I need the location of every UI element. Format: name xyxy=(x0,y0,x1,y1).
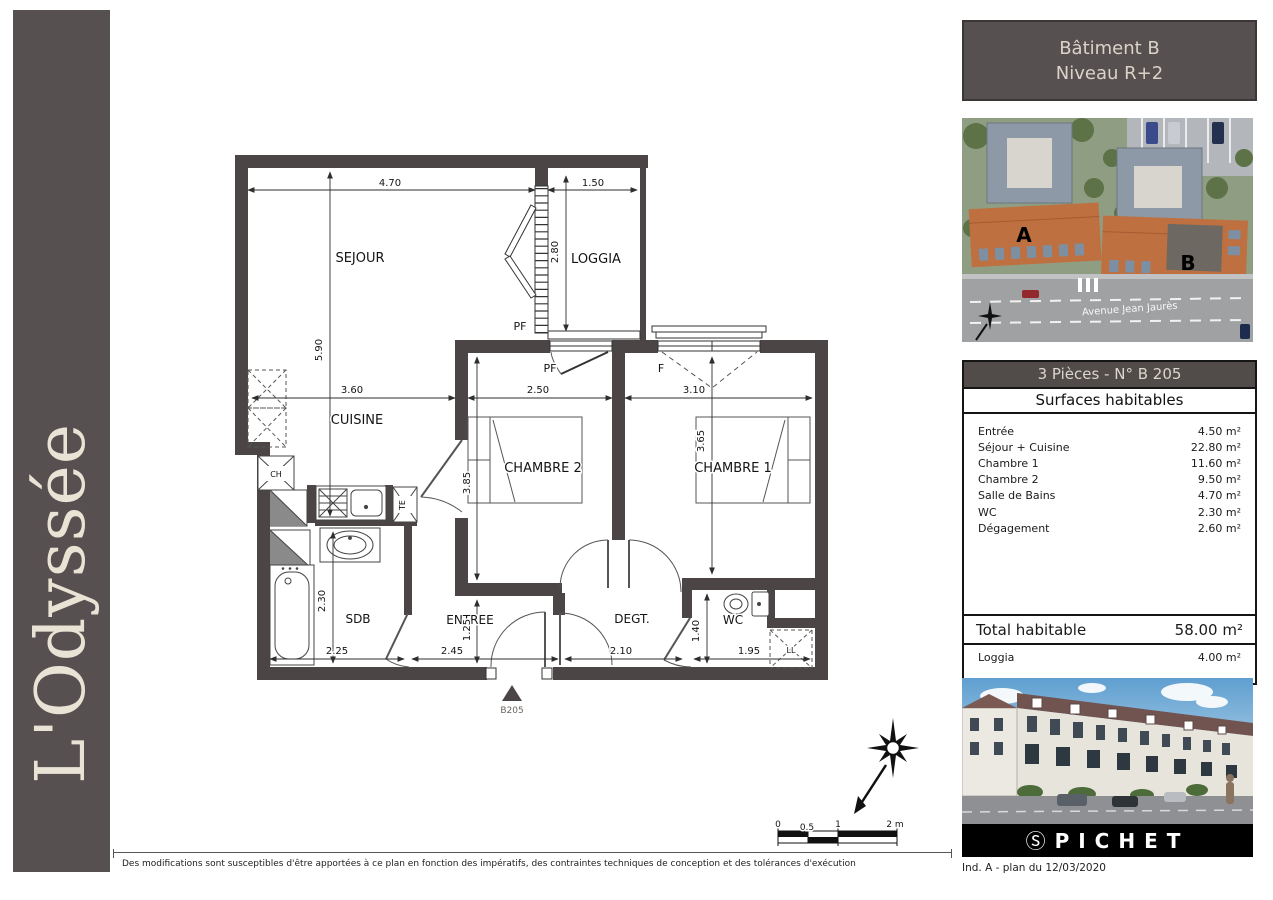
room-area: 2.60 m² xyxy=(1198,522,1241,535)
kitchen-sink xyxy=(316,486,386,520)
room-area: 4.70 m² xyxy=(1198,489,1241,502)
building-b-label: B xyxy=(1180,251,1195,275)
room-label: CUISINE xyxy=(331,413,383,428)
fixture-label: B205 xyxy=(500,706,523,716)
room-label: WC xyxy=(723,613,743,627)
unit-title: 3 Pièces - N° B 205 xyxy=(964,362,1255,389)
total-label: Total habitable xyxy=(976,621,1086,639)
pichet-wordmark: PICHET xyxy=(1055,829,1190,853)
fixture-label: CH xyxy=(270,470,282,479)
french-door-leaf xyxy=(505,256,536,298)
footer-rule xyxy=(113,852,952,853)
surface-row: WC 2.30 m² xyxy=(964,504,1255,520)
fixture-label: TE xyxy=(398,500,407,511)
surface-row: Dégagement 2.60 m² xyxy=(964,520,1255,536)
fixture-label: LL xyxy=(787,646,796,655)
dimension-label: 2.45 xyxy=(441,646,463,657)
sidebar: L'Odyssée xyxy=(13,10,110,872)
dimension-label: 2.30 xyxy=(317,590,328,612)
total-row: Total habitable 58.00 m² xyxy=(964,614,1255,643)
room-name: Chambre 2 xyxy=(978,473,1039,486)
room-area: 11.60 m² xyxy=(1191,457,1241,470)
room-label: SEJOUR xyxy=(335,251,384,266)
scale-label: 0 xyxy=(775,820,781,830)
building-b-roof xyxy=(1101,216,1248,283)
dimension-label: 3.65 xyxy=(696,430,707,452)
dimension-label: 1.25 xyxy=(462,619,473,641)
surface-row: Chambre 1 11.60 m² xyxy=(964,455,1255,471)
room-label: CHAMBRE 1 xyxy=(694,461,772,476)
room-area: 9.50 m² xyxy=(1198,473,1241,486)
fixture-label: F xyxy=(658,362,664,375)
bathtub xyxy=(270,565,314,665)
glazed-bay xyxy=(535,186,548,333)
placard xyxy=(248,370,286,447)
building-photo xyxy=(962,678,1253,824)
loggia-row: Loggia 4.00 m² xyxy=(964,643,1255,683)
scale-label: 0.5 xyxy=(800,823,814,833)
dimension-label: 1.95 xyxy=(738,646,760,657)
surface-row: Entrée 4.50 m² xyxy=(964,423,1255,439)
dimension-label: 1.40 xyxy=(691,620,702,642)
table-subtitle: Surfaces habitables xyxy=(964,389,1255,414)
dimension-label: 3.60 xyxy=(341,385,363,396)
room-name: Séjour + Cuisine xyxy=(978,441,1069,454)
dimension-label: 2.25 xyxy=(326,646,348,657)
pichet-icon: Ⓢ xyxy=(1026,831,1046,851)
dimension-label: 2.10 xyxy=(610,646,632,657)
room-name: Dégagement xyxy=(978,522,1049,535)
plan-header: Bâtiment B Niveau R+2 xyxy=(962,20,1257,101)
room-name: WC xyxy=(978,506,997,519)
room-label: CHAMBRE 2 xyxy=(504,461,582,476)
dimension-label: 2.80 xyxy=(550,241,561,263)
dimension-label: 2.50 xyxy=(527,385,549,396)
fixture-label: PF xyxy=(544,362,557,375)
floor-plan: SEJOURLOGGIACUISINECHAMBRE 2CHAMBRE 1SDB… xyxy=(110,140,960,855)
room-area: 4.50 m² xyxy=(1198,425,1241,438)
revision-note: Ind. A - plan du 12/03/2020 xyxy=(962,862,1253,874)
bed-chambre2 xyxy=(468,417,582,503)
dimension-label: 3.85 xyxy=(462,472,473,494)
floor-plan-sheet: L'Odyssée xyxy=(0,0,1273,900)
surface-rows: Entrée 4.50 m² Séjour + Cuisine 22.80 m²… xyxy=(964,414,1255,614)
pichet-logo: Ⓢ PICHET xyxy=(962,824,1253,857)
surface-row: Chambre 2 9.50 m² xyxy=(964,472,1255,488)
person-silhouette xyxy=(1226,774,1234,804)
north-compass-icon xyxy=(854,718,919,814)
dimension-label: 3.10 xyxy=(683,385,705,396)
scale-label: 2 m xyxy=(886,820,903,830)
room-name: Entrée xyxy=(978,425,1014,438)
surfaces-table: 3 Pièces - N° B 205 Surfaces habitables … xyxy=(962,360,1257,685)
aerial-photo: Avenue Jean Jaurès A B xyxy=(962,118,1253,342)
surface-row: Salle de Bains 4.70 m² xyxy=(964,488,1255,504)
entry-marker xyxy=(502,685,522,701)
room-label: SDB xyxy=(345,612,370,626)
dimension-label: 1.50 xyxy=(582,178,604,189)
french-door-leaf xyxy=(505,205,536,257)
room-name: Salle de Bains xyxy=(978,489,1055,502)
building-a-label: A xyxy=(1016,223,1032,247)
duct xyxy=(270,490,310,567)
dimension-label: 4.70 xyxy=(379,178,401,189)
room-label: LOGGIA xyxy=(571,252,621,267)
fixture-label: PF xyxy=(514,320,527,333)
residence-title: L'Odyssée xyxy=(22,423,102,784)
surface-row: Séjour + Cuisine 22.80 m² xyxy=(964,439,1255,455)
level-label: Niveau R+2 xyxy=(1056,63,1163,84)
room-area: 2.30 m² xyxy=(1198,506,1241,519)
disclaimer-text: Des modifications sont susceptibles d'êt… xyxy=(122,859,942,869)
total-value: 58.00 m² xyxy=(1175,621,1243,639)
bed-chambre1 xyxy=(696,417,810,503)
building-label: Bâtiment B xyxy=(1059,38,1160,59)
room-area: 22.80 m² xyxy=(1191,441,1241,454)
scale-label: 1 xyxy=(835,820,841,830)
room-name: Chambre 1 xyxy=(978,457,1039,470)
washbasin xyxy=(320,528,380,562)
dimension-label: 5.90 xyxy=(314,339,325,361)
room-label: DEGT. xyxy=(614,612,649,626)
building-a-roof xyxy=(969,202,1102,267)
